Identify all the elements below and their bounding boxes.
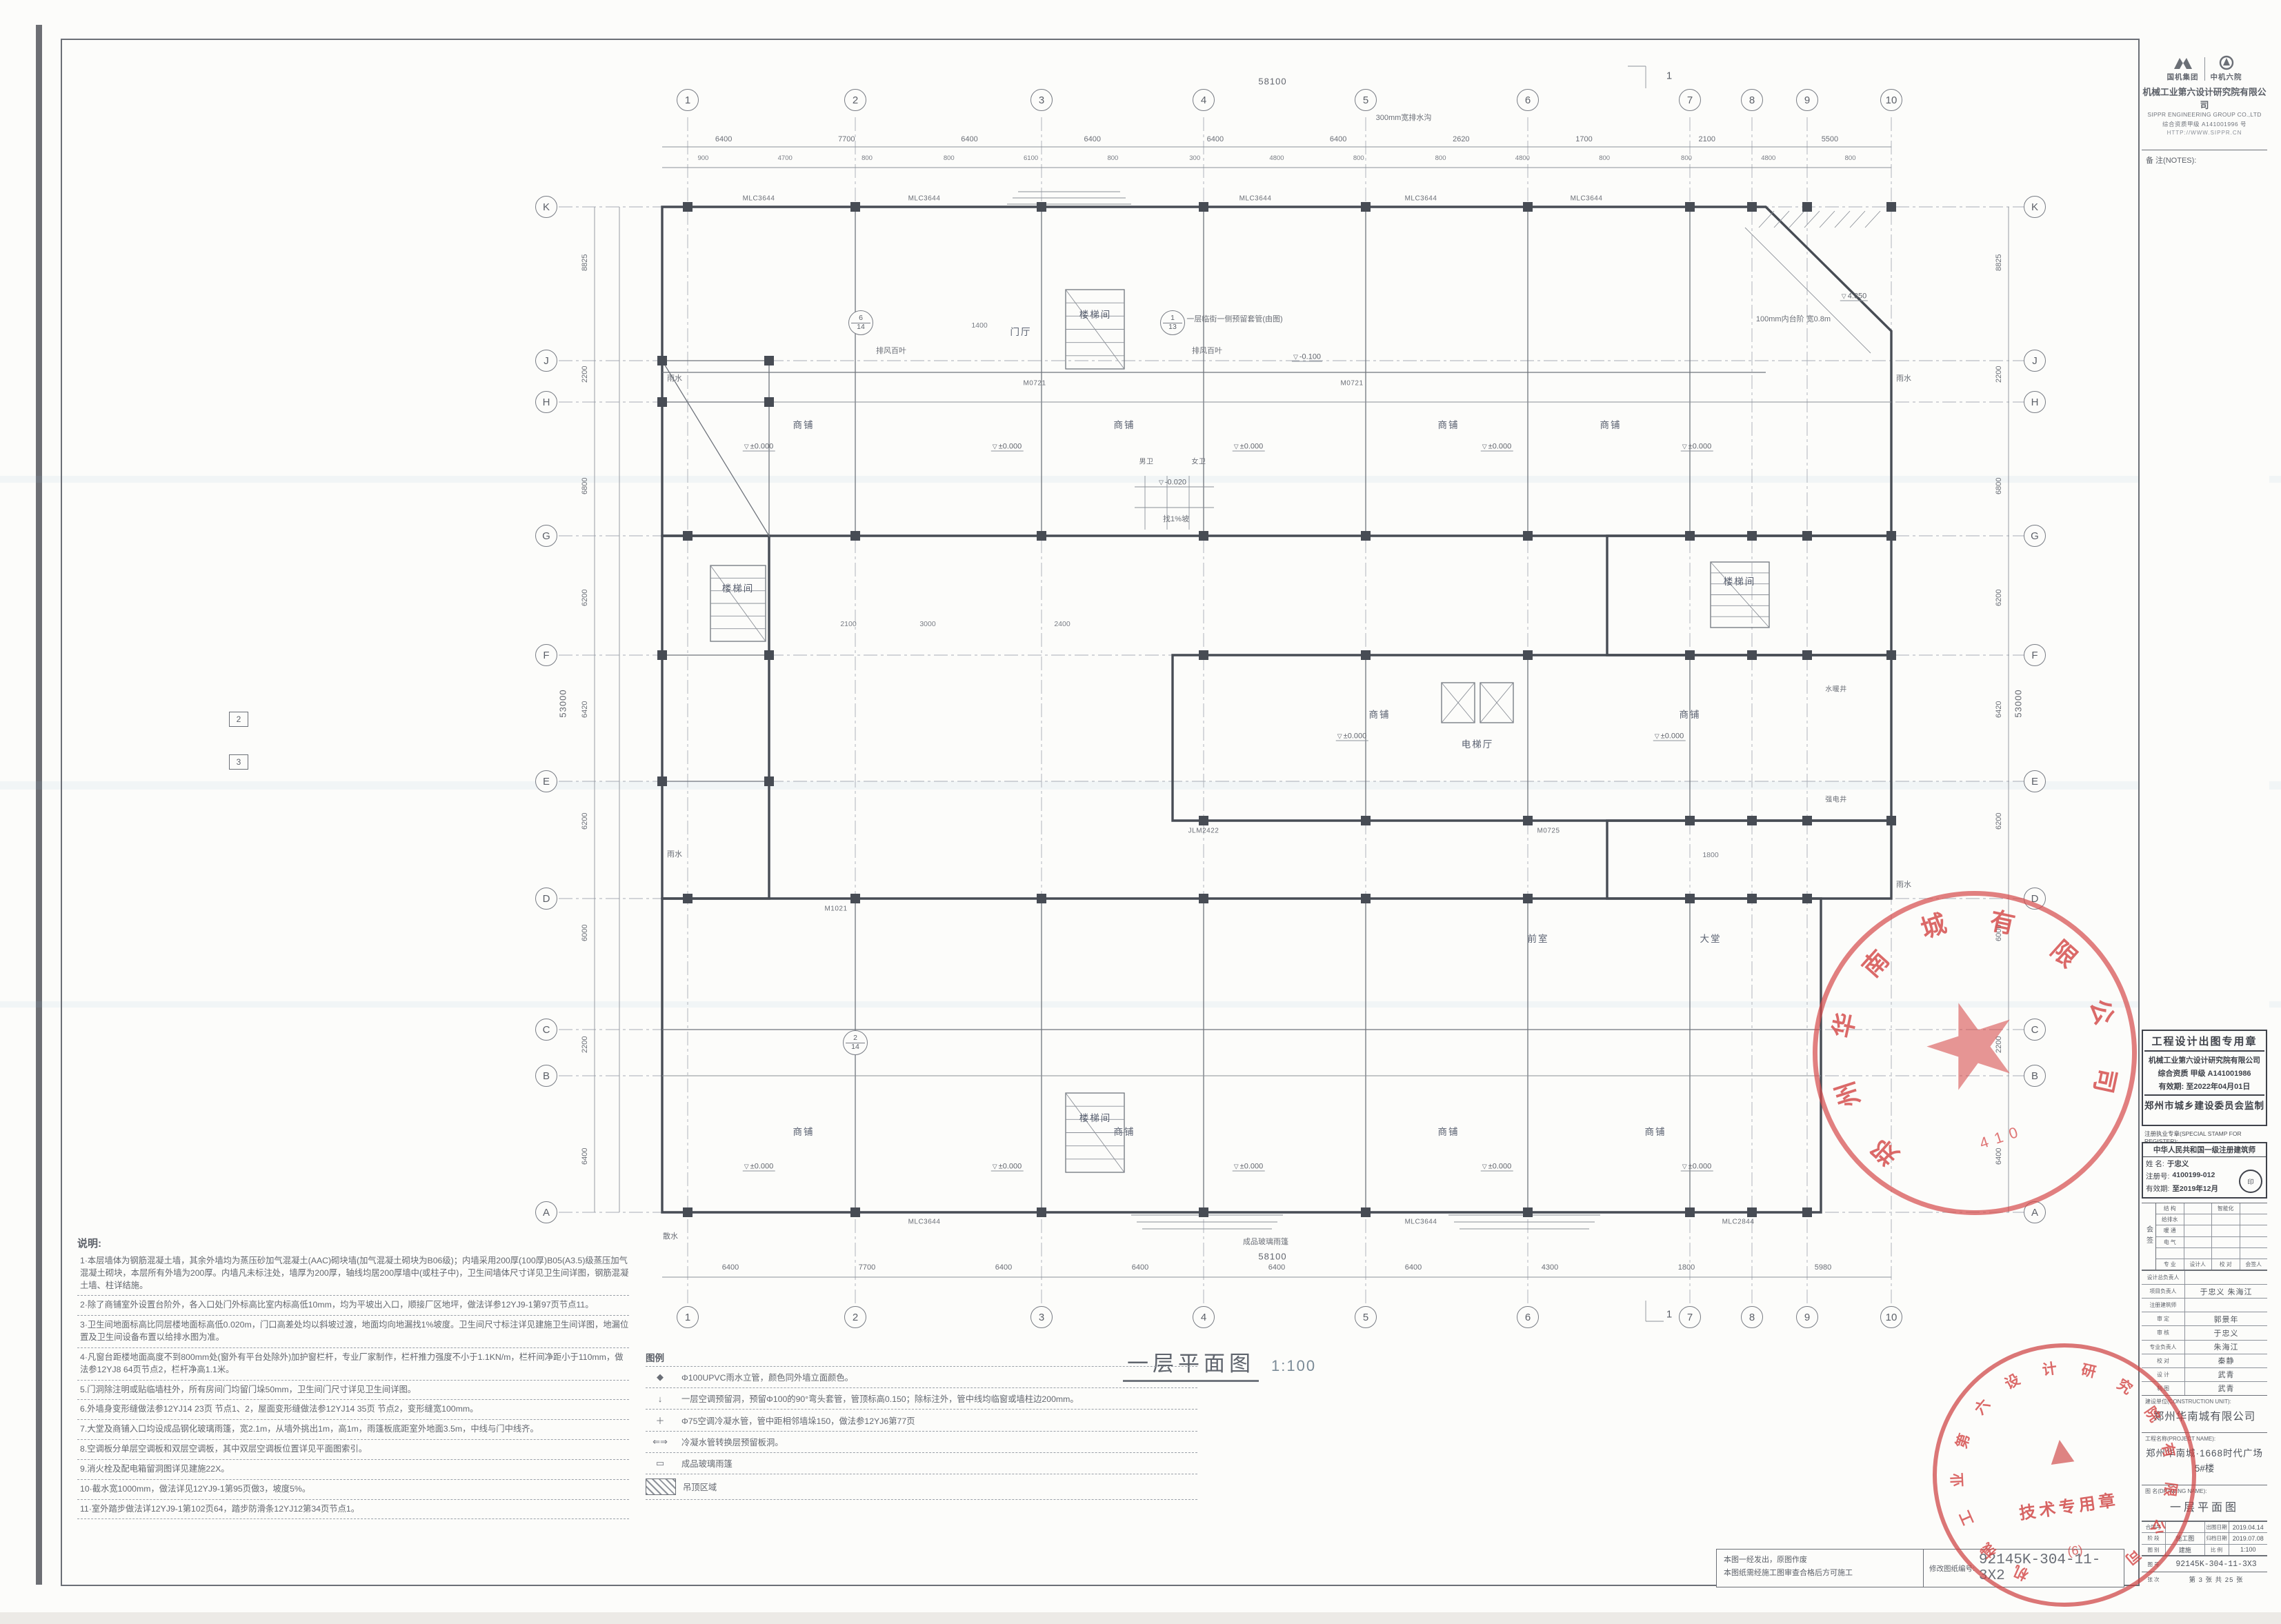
level-mark: ▽-0.020 — [1157, 479, 1188, 488]
dimension-value: 6400 — [1345, 1263, 1482, 1272]
personnel-row: 项目负责人于忠义 朱海江 — [2142, 1285, 2267, 1299]
dimension-value: 800 — [908, 154, 990, 162]
level-mark: ▽±0.000 — [1336, 732, 1368, 741]
section-mark-1-bottom: 1 — [1666, 1309, 1672, 1321]
personnel-name — [2185, 1271, 2267, 1284]
title-block-meta-rows: 合同号出图日期2019.04.14阶 段施工图归档日期2019.07.08图 别… — [2142, 1521, 2267, 1556]
detail-top: 6 — [859, 314, 863, 322]
architect-stamp: 中华人民共和国一级注册建筑师 姓 名:于忠义 注册号:4100199-012 有… — [2142, 1142, 2267, 1199]
plan-annotation: MLC3644 — [1405, 195, 1437, 203]
room-label: 楼梯间 — [722, 581, 755, 594]
column — [1361, 1207, 1371, 1217]
countersign-row: 电 气 — [2156, 1237, 2267, 1248]
room-label: 楼梯间 — [1079, 307, 1112, 321]
countersign-header-row: 专 业设计人校 对会签人 — [2156, 1259, 2267, 1270]
countersign-cell — [2240, 1248, 2268, 1259]
countersign-row — [2156, 1248, 2267, 1259]
meta-label: 比 例 — [2205, 1545, 2229, 1555]
meta-row: 阶 段施工图归档日期2019.07.08 — [2142, 1533, 2267, 1544]
countersign-row: 结 构智能化 — [2156, 1203, 2267, 1214]
room-label: 商铺 — [1369, 707, 1391, 721]
dimension-value: 6400 — [662, 135, 785, 143]
legend-text: 吊顶区域 — [683, 1481, 717, 1493]
countersign-cell: 智能化 — [2212, 1203, 2240, 1214]
drawing-name: 一层平面图 — [2145, 1498, 2264, 1514]
countersign-cell — [2212, 1214, 2240, 1225]
room-label: 商铺 — [1114, 1124, 1135, 1138]
personnel-row: 设 计武青 — [2142, 1368, 2267, 1382]
level-mark: ▽4.350 — [1840, 292, 1868, 301]
personnel-role: 审 核 — [2142, 1326, 2185, 1339]
plan-annotation: MLC3644 — [1571, 195, 1603, 203]
level-triangle-icon: ▽ — [1482, 1163, 1487, 1170]
company-name-en: SIPPR ENGINEERING GROUP CO.,LTD — [2142, 111, 2267, 118]
drawing-name-box: 图 名(DRAWING NAME): 一层平面图 — [2142, 1485, 2267, 1521]
personnel-role: 项目负责人 — [2142, 1285, 2185, 1298]
column — [1685, 202, 1695, 212]
top-total-dimension: 58100 — [1258, 77, 1286, 87]
plan-annotation: 1400 — [971, 321, 987, 330]
architect-valid-label: 有效期: — [2146, 1183, 2169, 1194]
plan-annotation: M0721 — [1340, 380, 1363, 388]
revision-number: 92145K-304-11-3X2 — [1979, 1552, 2118, 1584]
column — [1685, 531, 1695, 541]
personnel-name: 郭景年 — [2185, 1312, 2267, 1325]
column — [1685, 816, 1695, 825]
dimension-value: 6800 — [1995, 430, 2003, 542]
note-item: 1·本层墙体为钢筋混凝土墙，其余外墙均为蒸压砂加气混凝土(AAC)砌块墙(加气混… — [77, 1252, 629, 1296]
countersign-header-cell: 专 业 — [2156, 1259, 2184, 1270]
plan-line — [1850, 211, 1865, 228]
level-triangle-icon: ▽ — [1842, 293, 1846, 300]
legend-title: 图例 — [646, 1350, 1197, 1367]
room-label: 商铺 — [1600, 417, 1622, 431]
detail-bottom: 14 — [851, 1043, 859, 1051]
plan-annotation: MLC3644 — [908, 195, 941, 203]
countersign-cell — [2184, 1225, 2213, 1236]
plan-wall — [662, 207, 1891, 536]
column — [1747, 816, 1757, 825]
legend-symbol-icon: ↓ — [646, 1394, 675, 1404]
project-building: 5#楼 — [2145, 1461, 2264, 1474]
register-stamp-section: 注册执业专章(SPECIAL STAMP FOR REGISTER): — [2142, 1128, 2267, 1130]
grid-bubble-right: A — [2024, 1201, 2046, 1223]
plan-annotation: 2100 — [840, 620, 856, 628]
plan-annotation: 300mm宽排水沟 — [1376, 112, 1432, 123]
dimension-value: 5980 — [1755, 1263, 1891, 1272]
architect-seal-icon: 印 — [2239, 1170, 2262, 1193]
grid-bubble-top: 3 — [1030, 89, 1053, 111]
detail-top: 1 — [1171, 314, 1175, 322]
level-mark: ▽±0.000 — [991, 443, 1024, 452]
general-notes: 说明: 1·本层墙体为钢筋混凝土墙，其余外墙均为蒸压砂加气混凝土(AAC)砌块墙… — [77, 1236, 629, 1519]
room-label: 商铺 — [1680, 707, 1701, 721]
column — [850, 894, 860, 903]
countersign-side-label: 会签 — [2142, 1203, 2156, 1270]
countersign-cell — [2240, 1237, 2268, 1247]
construction-unit-name: 郑州华南城有限公司 — [2145, 1408, 2264, 1423]
sinomach-logo-icon — [2173, 55, 2193, 70]
countersign-cell — [2212, 1225, 2240, 1236]
column — [850, 202, 860, 212]
dimension-value: 6400 — [662, 1263, 799, 1272]
countersign-cell — [2156, 1248, 2184, 1259]
note-item: 7.大堂及商铺入口均设成品钢化玻璃雨篷，宽2.1m，从墙外挑出1m，高1m，雨篷… — [77, 1420, 629, 1440]
grid-bubble-right: C — [2024, 1019, 2046, 1041]
level-value: ±0.000 — [999, 443, 1022, 451]
section-mark-1-top: 1 — [1666, 70, 1672, 82]
remarks-label: 备 注(NOTES): — [2146, 154, 2196, 166]
dimension-value: 6400 — [1154, 135, 1277, 143]
project-name-box: 工程名称(PROJECT NAME): 郑州华南城·1668时代广场 5#楼 — [2142, 1433, 2267, 1485]
note-item: 11·室外踏步做法详12YJ9-1第102页64，踏步防滑条12YJ12第34页… — [77, 1500, 629, 1520]
level-mark: ▽±0.000 — [1481, 1163, 1513, 1172]
meta-row: 图 别建施比 例1:100 — [2142, 1545, 2267, 1555]
grid-bubble-right: H — [2024, 391, 2046, 413]
column — [683, 531, 693, 541]
detail-callout-bubble: 214 — [843, 1030, 868, 1055]
dimension-value: 6400 — [1995, 1101, 2003, 1212]
legend-text: Φ75空调冷凝水管，管中距相邻墙垛150，做法参12YJ6第77页 — [681, 1414, 915, 1427]
section-mark-2: 2 — [229, 712, 248, 727]
room-label: 门厅 — [1010, 324, 1032, 338]
grid-bubble-bottom: 3 — [1030, 1306, 1053, 1328]
column — [1037, 1207, 1046, 1217]
grid-bubble-left: C — [535, 1019, 557, 1041]
plan-annotation: 2400 — [1054, 620, 1070, 628]
plan-line — [1759, 211, 1774, 228]
right-dim-column: 882522006800620064206200600022006400 — [1992, 207, 2006, 1212]
countersign-cell — [2184, 1214, 2213, 1225]
dimension-value: 6400 — [1208, 1263, 1345, 1272]
legend-hatch-swatch — [646, 1478, 676, 1495]
dimension-value: 6000 — [581, 877, 589, 989]
plan-wall — [1607, 536, 1891, 655]
personnel-row: 审 定郭景年 — [2142, 1312, 2267, 1326]
room-label: 商铺 — [1438, 1124, 1460, 1138]
countersign-cell: 电 气 — [2156, 1237, 2184, 1247]
grid-bubble-bottom: 9 — [1796, 1306, 1818, 1328]
issue-note-line2: 本图纸需经施工图审查合格后方可施工 — [1724, 1567, 1916, 1580]
dimension-value: 800 — [826, 154, 908, 162]
design-output-stamp: 工程设计出图专用章 机械工业第六设计研究院有限公司 综合资质 甲级 A14100… — [2142, 1030, 2267, 1126]
meta-label: 合同号 — [2142, 1522, 2166, 1532]
legend-item: 吊顶区域 — [646, 1474, 1197, 1500]
level-mark: ▽±0.000 — [1233, 443, 1265, 452]
grid-bubble-left: F — [535, 644, 557, 666]
plan-annotation: 雨水 — [1896, 879, 1911, 890]
drawing-sheet: 1122334455667788991010KKJJHHGGFFEEDDCCBB… — [0, 0, 2281, 1612]
level-value: ±0.000 — [1344, 732, 1367, 741]
level-triangle-icon: ▽ — [1293, 354, 1298, 361]
dimension-value: 4800 — [1482, 154, 1564, 162]
countersign-row: 给排水 — [2156, 1214, 2267, 1225]
meta-value: 2019.07.08 — [2229, 1533, 2268, 1543]
top_subdims: 9004700800800610080030048008008004800800… — [662, 154, 1891, 162]
dimension-value: 2620 — [1400, 135, 1522, 143]
detail-bottom: 14 — [857, 323, 865, 331]
grid-bubble-top: 9 — [1796, 89, 1818, 111]
meta-value: 建施 — [2166, 1545, 2205, 1555]
personnel-name: 武青 — [2185, 1368, 2267, 1381]
level-value: ±0.000 — [1661, 732, 1684, 741]
grid-bubble-right: G — [2024, 525, 2046, 547]
dimension-value: 6420 — [581, 654, 589, 765]
stamp-cert: 综合资质 甲级 A141001986 — [2144, 1067, 2264, 1079]
dimension-value: 6400 — [908, 135, 1030, 143]
legend-item: ▭成品玻璃雨篷 — [646, 1453, 1197, 1474]
plan-annotation: 排风百叶 — [876, 345, 906, 356]
column — [1802, 1207, 1812, 1217]
plan-line — [1804, 211, 1820, 228]
grid-bubble-bottom: 8 — [1741, 1306, 1763, 1328]
personnel-role: 设计总负责人 — [2142, 1271, 2185, 1284]
project-name-label: 工程名称(PROJECT NAME): — [2145, 1435, 2264, 1443]
countersign-table: 会签 结 构智能化给排水暖 通电 气专 业设计人校 对会签人 — [2142, 1203, 2267, 1270]
level-value: ±0.000 — [1488, 1163, 1512, 1171]
personnel-row: 注册建筑师 — [2142, 1299, 2267, 1312]
construction-unit-box: 建设单位(CONSTRUCTION UNIT): 郑州华南城有限公司 — [2142, 1396, 2267, 1433]
grid-bubble-top: 5 — [1355, 89, 1377, 111]
dimension-value: 4800 — [1727, 154, 1809, 162]
grid-bubble-left: H — [535, 391, 557, 413]
legend-text: 冷凝水管转换层预留板洞。 — [681, 1436, 784, 1448]
plan-annotation: MLC3644 — [1405, 1219, 1437, 1226]
room-label: 商铺 — [1114, 417, 1135, 431]
column — [683, 894, 693, 903]
dimension-value: 6400 — [581, 1101, 589, 1212]
grid-bubble-left: K — [535, 196, 557, 218]
architect-stamp-title: 中华人民共和国一级注册建筑师 — [2143, 1143, 2266, 1157]
level-triangle-icon: ▽ — [1159, 479, 1164, 486]
dimension-value: 5500 — [1769, 135, 1891, 143]
grid-bubble-top: 4 — [1193, 89, 1215, 111]
plan-scale: 1:100 — [1271, 1357, 1316, 1375]
room-label: 商铺 — [793, 1124, 815, 1138]
level-triangle-icon: ▽ — [744, 1163, 749, 1170]
level-triangle-icon: ▽ — [1682, 443, 1687, 450]
countersign-cell — [2184, 1203, 2213, 1214]
column — [1361, 816, 1371, 825]
level-mark: ▽±0.000 — [1481, 443, 1513, 452]
grid-bubble-top: 10 — [1880, 89, 1902, 111]
dimension-value: 6200 — [581, 542, 589, 654]
plan-annotation: 排风百叶 — [1192, 345, 1222, 356]
column — [1886, 202, 1896, 212]
meta-value: 1:100 — [2229, 1545, 2268, 1555]
column — [1199, 650, 1208, 660]
stamp-company: 机械工业第六设计研究院有限公司 — [2144, 1054, 2264, 1065]
personnel-name: 秦静 — [2185, 1354, 2267, 1367]
room-label: 楼梯间 — [1724, 574, 1756, 588]
dimension-value: 2200 — [581, 989, 589, 1101]
remarks-section: 备 注(NOTES): — [2142, 150, 2267, 152]
level-value: 4.350 — [1848, 292, 1867, 301]
room-label: 商铺 — [1438, 417, 1460, 431]
dimension-value: 8825 — [581, 207, 589, 319]
column — [1361, 531, 1371, 541]
plan-line — [1774, 211, 1789, 228]
countersign-header-cell: 设计人 — [2184, 1259, 2213, 1270]
level-mark: ▽-0.100 — [1292, 353, 1322, 362]
dimension-value: 6400 — [1072, 1263, 1208, 1272]
legend-item: ⇐⇒冷凝水管转换层预留板洞。 — [646, 1432, 1197, 1453]
plan-annotation: M1021 — [824, 905, 847, 913]
column — [683, 202, 693, 212]
dimension-value: 6420 — [1995, 654, 2003, 765]
meta-label: 归档日期 — [2205, 1533, 2229, 1543]
personnel-role: 注册建筑师 — [2142, 1299, 2185, 1312]
legend-item: ◆Φ100UPVC雨水立管，颜色同外墙立面颜色。 — [646, 1367, 1197, 1388]
column — [657, 650, 667, 660]
grid-bubble-bottom: 5 — [1355, 1306, 1377, 1328]
column — [657, 397, 667, 407]
column — [850, 1207, 860, 1217]
section-mark-3-label: 3 — [237, 757, 241, 767]
meta-label: 出图日期 — [2205, 1522, 2229, 1532]
column — [1747, 894, 1757, 903]
column — [657, 776, 667, 786]
meta-row: 合同号出图日期2019.04.14 — [2142, 1522, 2267, 1533]
personnel-name: 于忠义 — [2185, 1326, 2267, 1339]
meta-label: 阶 段 — [2142, 1533, 2166, 1543]
level-value: -0.100 — [1299, 353, 1321, 361]
dimension-value: 4700 — [744, 154, 826, 162]
personnel-row: 制 图武青 — [2142, 1382, 2267, 1395]
level-mark: ▽±0.000 — [1653, 732, 1686, 741]
level-value: ±0.000 — [1240, 1163, 1264, 1171]
dimension-value: 2100 — [1646, 135, 1769, 143]
dimension-value: 800 — [1646, 154, 1728, 162]
grid-bubble-right: B — [2024, 1065, 2046, 1087]
column — [1747, 650, 1757, 660]
dimension-value: 7700 — [785, 135, 908, 143]
room-label: 商铺 — [793, 417, 815, 431]
detail-callout-bubble: 113 — [1160, 310, 1185, 335]
room-label: 前室 — [1528, 931, 1549, 945]
plan-annotation: M0725 — [1537, 828, 1560, 835]
legend-symbol-icon: ＋ — [646, 1414, 675, 1427]
detail-bottom: 13 — [1168, 323, 1177, 331]
personnel-role: 制 图 — [2142, 1382, 2185, 1395]
room-label: 楼梯间 — [1079, 1110, 1112, 1124]
sippr-logo-icon — [2216, 55, 2237, 70]
column — [1199, 816, 1208, 825]
countersign-side-text: 会签 — [2144, 1225, 2154, 1247]
stamp-title: 工程设计出图专用章 — [2144, 1034, 2264, 1052]
meta-value — [2166, 1522, 2205, 1532]
dimension-value: 2200 — [1995, 319, 2003, 430]
issue-note-band: 本图一经发出，原图作废 本图纸需经施工图审查合格后方可施工 修改图纸编号: 92… — [1716, 1549, 2124, 1587]
level-value: -0.020 — [1165, 479, 1186, 487]
plan-annotation: 一层临街一侧预留套管(由图) — [1186, 313, 1282, 324]
column — [1747, 531, 1757, 541]
plan-annotation: 男卫 — [1139, 456, 1154, 466]
personnel-name: 朱海江 — [2185, 1341, 2267, 1354]
brand-sippr: 中机六院 — [2211, 55, 2242, 82]
level-value: ±0.000 — [1689, 1163, 1712, 1171]
plan-annotation: 雨水 — [667, 848, 682, 859]
level-triangle-icon: ▽ — [1337, 733, 1342, 740]
column — [1199, 202, 1208, 212]
revision-number-cell: 修改图纸编号: 92145K-304-11-3X2 — [1924, 1550, 2124, 1587]
company-name: 机械工业第六设计研究院有限公司 — [2142, 85, 2267, 111]
level-triangle-icon: ▽ — [1482, 443, 1487, 450]
plan-annotation: MLC2844 — [1722, 1219, 1755, 1226]
column — [764, 356, 774, 365]
plan-wall — [1173, 655, 1891, 821]
dimension-value: 6400 — [935, 1263, 1072, 1272]
plan-annotation: 水暖井 — [1825, 683, 1847, 694]
column — [1361, 202, 1371, 212]
grid-bubble-bottom: 10 — [1880, 1306, 1902, 1328]
brand-sinomach: 国机集团 — [2167, 55, 2199, 82]
level-value: ±0.000 — [1689, 443, 1712, 451]
grid-bubble-left: G — [535, 525, 557, 547]
plan-annotation: 1800 — [1702, 851, 1718, 859]
architect-name-label: 姓 名: — [2146, 1159, 2164, 1169]
grid-bubble-bottom: 7 — [1679, 1306, 1701, 1328]
plan-line — [1835, 211, 1850, 228]
plan-annotation: MLC3644 — [743, 195, 775, 203]
countersign-cell: 给排水 — [2156, 1214, 2184, 1225]
title-block-column: 国机集团 中机六院 机械工业第六设计研究院有限公司 SIPPR ENGINEER… — [2138, 39, 2269, 1586]
level-value: ±0.000 — [1240, 443, 1264, 451]
countersign-cell — [2184, 1248, 2213, 1259]
plan-line — [1865, 211, 1880, 228]
personnel-role: 校 对 — [2142, 1354, 2185, 1367]
room-label: 商铺 — [1645, 1124, 1666, 1138]
dimension-value: 800 — [1809, 154, 1891, 162]
plan-annotation: MLC3644 — [908, 1219, 941, 1226]
grid-bubble-right: D — [2024, 888, 2046, 910]
column — [1523, 650, 1533, 660]
legend-symbol-icon: ⇐⇒ — [646, 1436, 675, 1447]
dimension-value: 8825 — [1995, 207, 2003, 319]
level-value: ±0.000 — [750, 443, 774, 451]
plan-annotation: 成品玻璃雨篷 — [1243, 1236, 1288, 1247]
column — [764, 776, 774, 786]
dimension-value: 6000 — [1995, 877, 2003, 989]
personnel-name — [2185, 1299, 2267, 1312]
top_dims: 6400770064006400640064002620170021005500 — [662, 135, 1891, 143]
level-triangle-icon: ▽ — [993, 443, 997, 450]
revision-number-label: 修改图纸编号: — [1929, 1563, 1975, 1574]
company-cert: 综合资质甲级 A141001996 号 — [2142, 120, 2267, 128]
notes-title: 说明: — [77, 1236, 629, 1250]
column — [764, 650, 774, 660]
grid-bubble-top: 6 — [1517, 89, 1539, 111]
note-item: 2·除了商铺室外设置台阶外，各入口处门外标高比室内标高低10mm，均为平坡出入口… — [77, 1296, 629, 1316]
dimension-value: 2200 — [581, 319, 589, 430]
column — [1523, 894, 1533, 903]
countersign-cell — [2240, 1203, 2268, 1214]
drawing-name-label: 图 名(DRAWING NAME): — [2145, 1487, 2264, 1495]
grid-bubble-top: 8 — [1741, 89, 1763, 111]
column — [1199, 1207, 1208, 1217]
column — [1886, 531, 1896, 541]
detail-top: 2 — [853, 1034, 857, 1042]
dimension-value: 6200 — [581, 765, 589, 877]
grid-bubble-right: K — [2024, 196, 2046, 218]
dimension-value: 6100 — [990, 154, 1072, 162]
issue-note-line1: 本图一经发出，原图作废 — [1724, 1554, 1916, 1567]
level-mark: ▽±0.000 — [991, 1163, 1024, 1172]
personnel-role: 专业负责人 — [2142, 1341, 2185, 1354]
legend-symbol-icon: ▭ — [646, 1458, 675, 1469]
column — [1685, 1207, 1695, 1217]
dimension-value: 2200 — [1995, 989, 2003, 1101]
